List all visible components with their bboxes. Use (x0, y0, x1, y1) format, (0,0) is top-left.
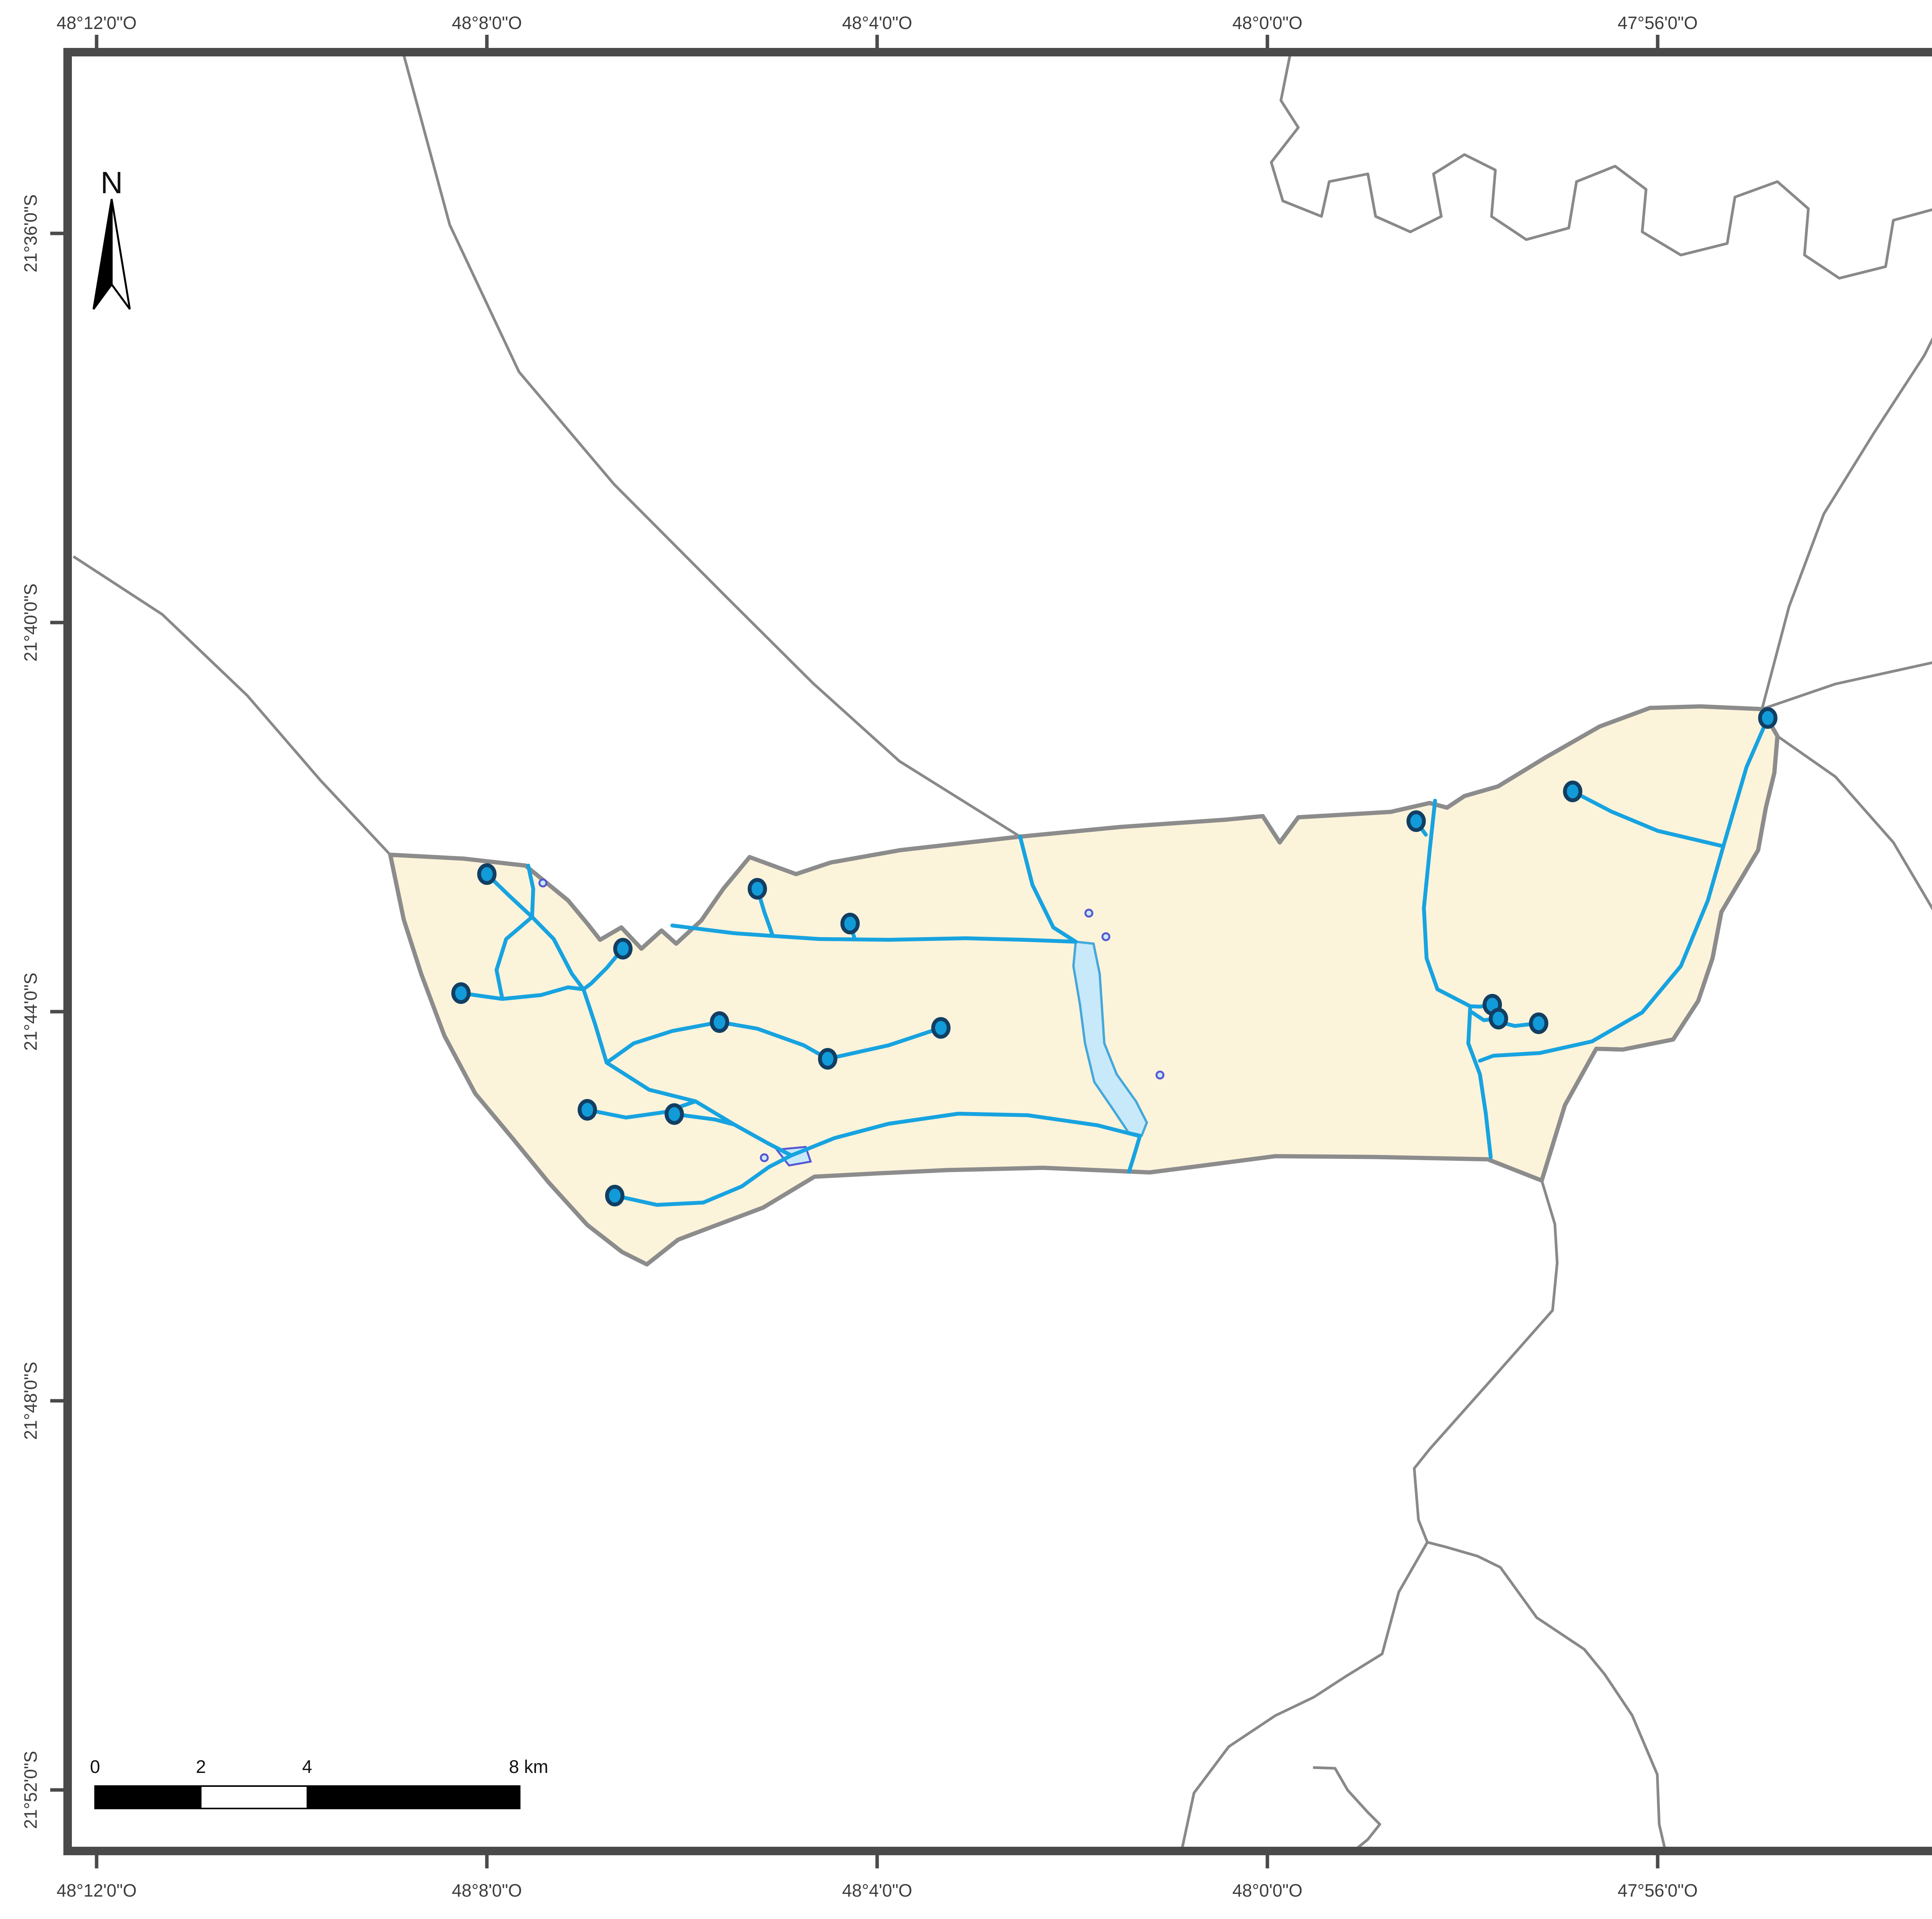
north-arrow-icon: N (94, 165, 130, 309)
lat-tick-label: 21°36'0"S (20, 194, 41, 272)
lon-tick-label-top: 48°0'0"O (1232, 13, 1303, 33)
small-water-speck (1102, 933, 1109, 940)
small-water-speck (1156, 1072, 1163, 1079)
lat-tick-label: 21°52'0"S (20, 1751, 41, 1829)
neighbor-boundary-line (1762, 301, 1932, 709)
lon-tick-label-bottom: 48°8'0"O (452, 1880, 522, 1900)
lon-tick-label-bottom: 47°56'0"O (1617, 1880, 1697, 1900)
nascente-dot (615, 940, 631, 958)
neighbor-boundary-line (1762, 649, 1932, 709)
lon-tick-label-bottom: 48°0'0"O (1232, 1880, 1303, 1900)
nascente-dot (820, 1050, 835, 1068)
lat-tick-label: 21°48'0"S (20, 1362, 41, 1440)
nascente-dot (933, 1019, 949, 1037)
lon-tick-label-bottom: 48°4'0"O (842, 1880, 912, 1900)
nascente-dot (712, 1013, 727, 1031)
nascente-dot (1760, 709, 1776, 727)
nascente-dot (1531, 1014, 1546, 1032)
lon-tick-label-top: 48°4'0"O (842, 13, 912, 33)
nascente-dot (1565, 783, 1580, 800)
nascente-dot (1491, 1010, 1506, 1028)
scalebar-label-8km: 8 km (509, 1756, 548, 1777)
small-water-speck (761, 1154, 768, 1161)
nascente-dot (479, 865, 495, 883)
lon-tick-label-top: 48°8'0"O (452, 13, 522, 33)
scalebar-label-2: 2 (196, 1756, 206, 1777)
small-water-speck (539, 880, 546, 886)
nascente-dot (607, 1187, 622, 1204)
lon-tick-label-bottom: 48°12'0"O (56, 1880, 136, 1900)
lon-tick-label-top: 47°56'0"O (1617, 13, 1697, 33)
north-label: N (100, 165, 123, 200)
lat-tick-label: 21°40'0"S (20, 584, 41, 662)
small-water-speck (1085, 910, 1092, 917)
scalebar-label-0: 0 (90, 1756, 100, 1777)
scale-bar: 0 2 4 8 km (90, 1756, 548, 1808)
nascente-dot (750, 880, 765, 898)
nascente-dot (453, 984, 469, 1002)
lat-tick-label: 21°44'0"S (20, 973, 41, 1051)
neighbor-boundary-line (403, 52, 1020, 837)
neighbor-boundary-line (1182, 1542, 1427, 1847)
nascente-dot (580, 1101, 595, 1119)
scalebar-label-4: 4 (302, 1756, 312, 1777)
neighbor-boundary-line (1414, 1181, 1665, 1851)
neighbor-boundary-line (1313, 1768, 1380, 1851)
lon-tick-label-top: 48°12'0"O (56, 13, 136, 33)
map-canvas[interactable]: 48°12'0"O48°12'0"O48°8'0"O48°8'0"O48°4'0… (0, 0, 1932, 1919)
nascente-dot (1408, 812, 1424, 830)
neighbor-boundary-line (1271, 52, 1932, 313)
neighbor-boundary-line (73, 556, 390, 855)
nascente-dot (667, 1105, 682, 1123)
neighbor-boundary-line (1777, 736, 1932, 1067)
nascente-dot (842, 915, 858, 932)
